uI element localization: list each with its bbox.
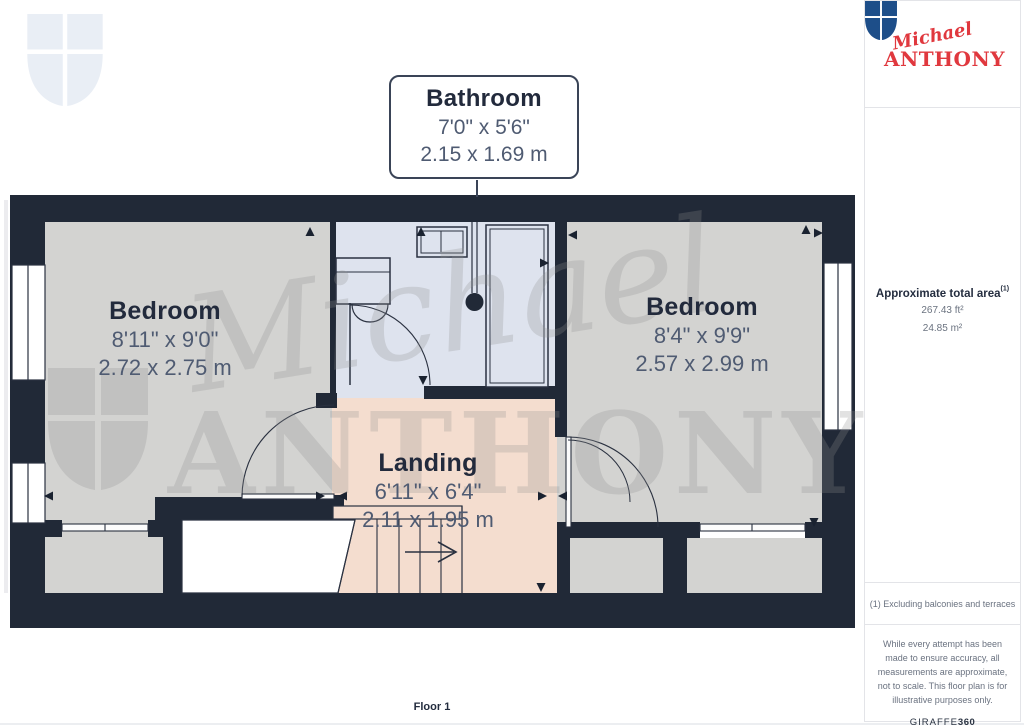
landing-label: Landing 6'11" x 6'4" 2.11 x 1.95 m [318,448,538,534]
area-title: Approximate total area [876,288,1001,300]
total-area-section: Approximate total area(1) 267.43 ft² 24.… [865,108,1020,582]
agency-logo: Michael ANTHONY [865,1,1020,108]
wall-top [10,195,855,222]
provider-name-bold: 360 [958,717,975,725]
cupboard-right-floor [687,538,823,593]
disclaimer-text: While every attempt has been made to ens… [878,639,1008,705]
landing-imperial: 6'11" x 6'4" [318,478,538,506]
page-shield-icon [25,14,105,106]
bedroom-left-metric: 2.72 x 2.75 m [45,354,285,382]
bathroom-name: Bathroom [395,84,573,114]
floor-label: Floor 1 [0,701,864,713]
provider-name: GIRAFFE [910,717,958,725]
bathroom-imperial: 7'0" x 5'6" [395,114,573,141]
bedroom-left-imperial: 8'11" x 9'0" [45,326,285,354]
cupboard-mid-floor [570,538,663,593]
wall-bottom [10,593,855,628]
bedroom-left-label: Bedroom 8'11" x 9'0" 2.72 x 2.75 m [45,296,285,382]
area-sqm: 24.85 m² [865,320,1020,338]
bathroom-metric: 2.15 x 1.69 m [395,141,573,168]
provider-logo: GIRAFFE360 [874,716,1011,725]
bedroom-right-name: Bedroom [582,292,822,322]
area-note-ref: (1) [1001,286,1010,293]
bedroom-left-name: Bedroom [45,296,285,326]
sidebar: Michael ANTHONY Approximate total area(1… [864,0,1021,722]
wall-col-b [663,538,687,593]
bedroom-right-label: Bedroom 8'4" x 9'9" 2.57 x 2.99 m [582,292,822,378]
bedroom-right-metric: 2.57 x 2.99 m [582,350,822,378]
bathroom-callout: Bathroom 7'0" x 5'6" 2.15 x 1.69 m [389,75,579,179]
disclaimer-section: While every attempt has been made to ens… [865,624,1020,721]
wall-col-a [557,538,570,593]
floorplan-page: Michael ANTHONY Bathroom 7'0" x 5'6" 2.1… [0,0,1024,725]
footnote: (1) Excluding balconies and terraces [865,582,1020,624]
landing-name: Landing [318,448,538,478]
bedroom-right-imperial: 8'4" x 9'9" [582,322,822,350]
wall-stub-wardrobe-b [148,520,163,537]
area-sqft: 267.43 ft² [865,302,1020,320]
landing-metric: 2.11 x 1.95 m [318,506,538,534]
wall-col-left [163,520,182,593]
wall-bedR-bottom-a [557,522,700,538]
